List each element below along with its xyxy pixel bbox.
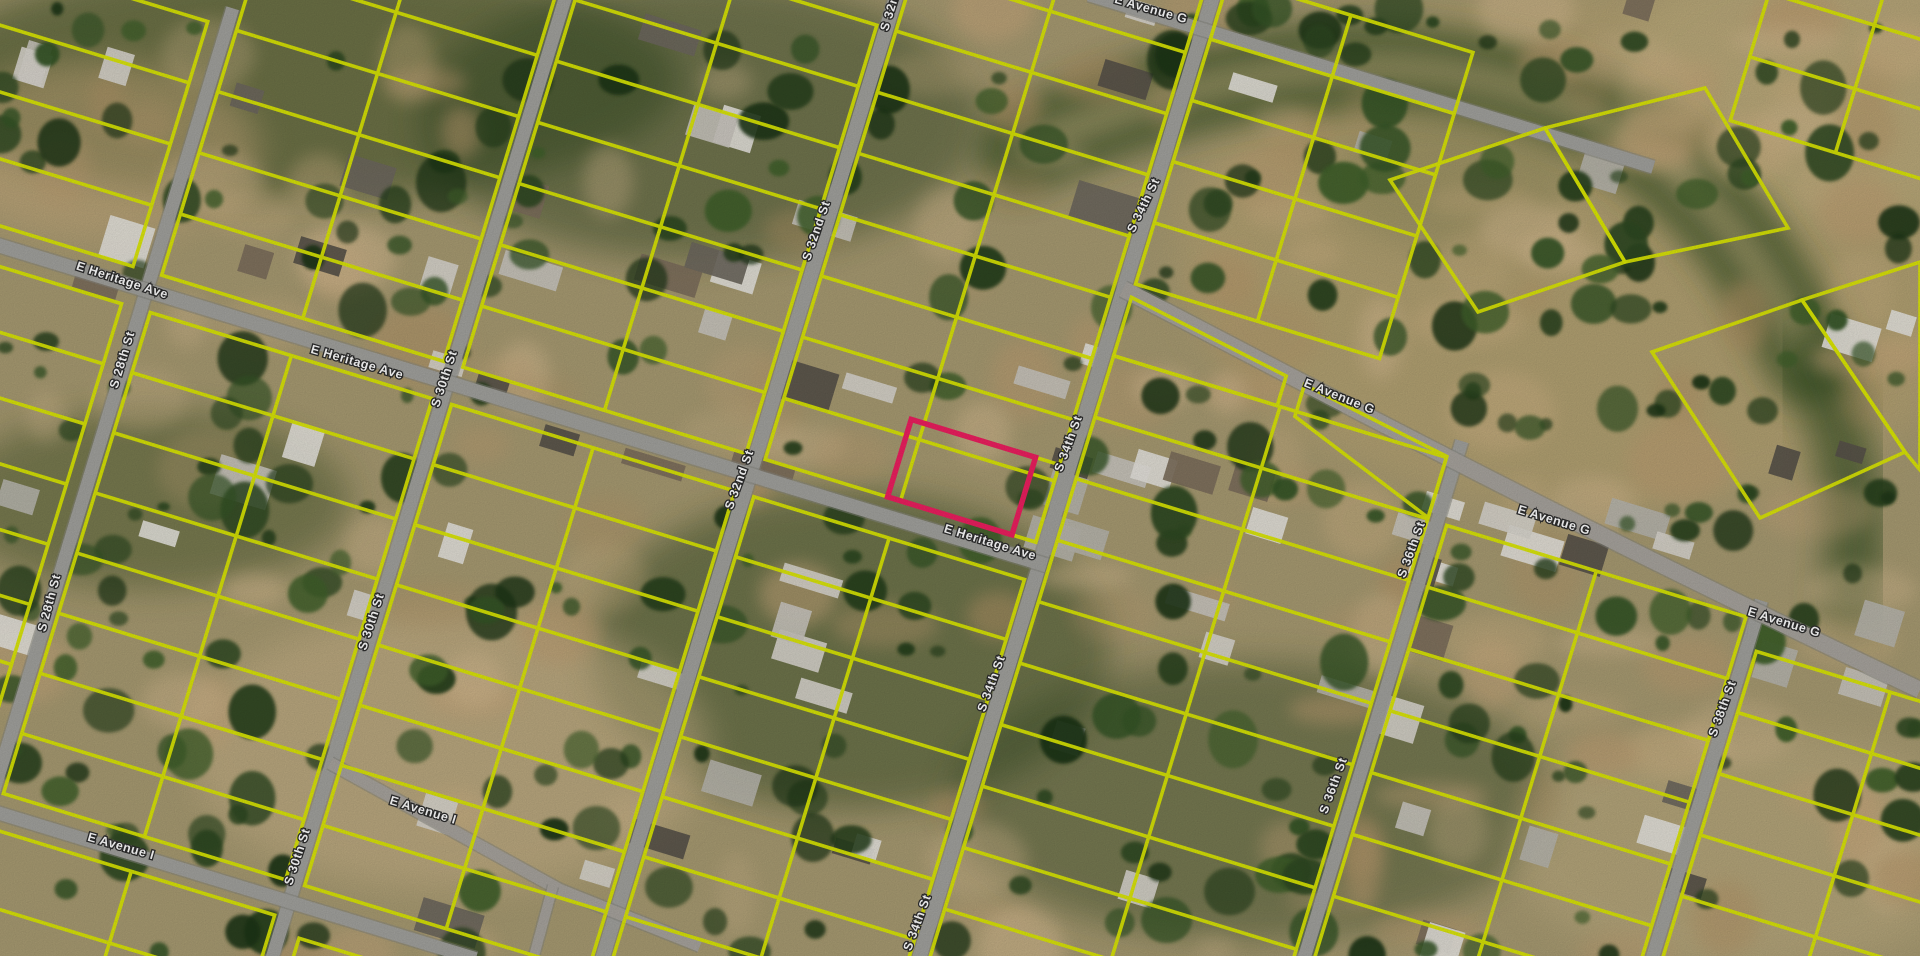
grain-overlay (0, 0, 1920, 956)
satellite-parcel-map[interactable]: E Avenue GS 32nd StS 34th StE Heritage A… (0, 0, 1920, 956)
map-viewport[interactable]: E Avenue GS 32nd StS 34th StE Heritage A… (0, 0, 1920, 956)
